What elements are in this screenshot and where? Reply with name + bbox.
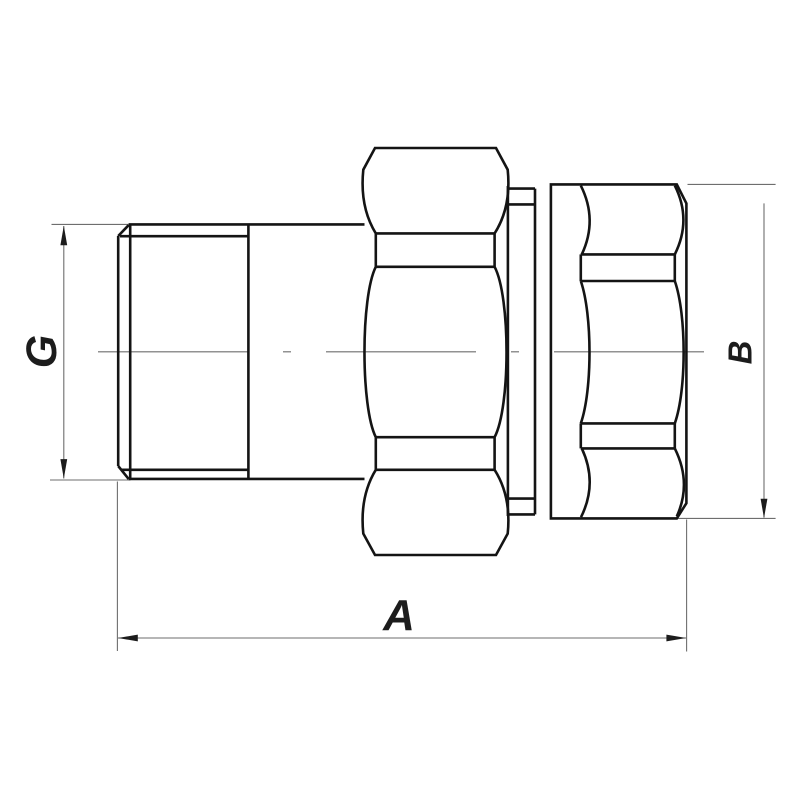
- dimension-label-a: A: [382, 591, 415, 640]
- b-arrow-down: [761, 499, 768, 519]
- body-hex-arc-right-bottom: [675, 448, 684, 516]
- a-arrow-right: [666, 635, 686, 642]
- thread-chamfer-bottom: [118, 466, 128, 479]
- g-arrow-up: [60, 226, 67, 246]
- thread-chamfer-top: [118, 225, 128, 236]
- dimension-arrowheads: [60, 226, 767, 642]
- g-arrow-down: [60, 459, 67, 479]
- drawing-canvas: G A B: [0, 0, 800, 800]
- pipe-union-technical-drawing: G A B: [0, 0, 800, 800]
- dimension-label-b: B: [722, 341, 759, 365]
- a-arrow-left: [118, 635, 138, 642]
- tailpiece-flange: [508, 186, 535, 516]
- dimension-label-g: G: [18, 335, 66, 368]
- body-hex-arc-left-bottom: [581, 448, 590, 517]
- body-hex-arc-left-top: [581, 186, 590, 255]
